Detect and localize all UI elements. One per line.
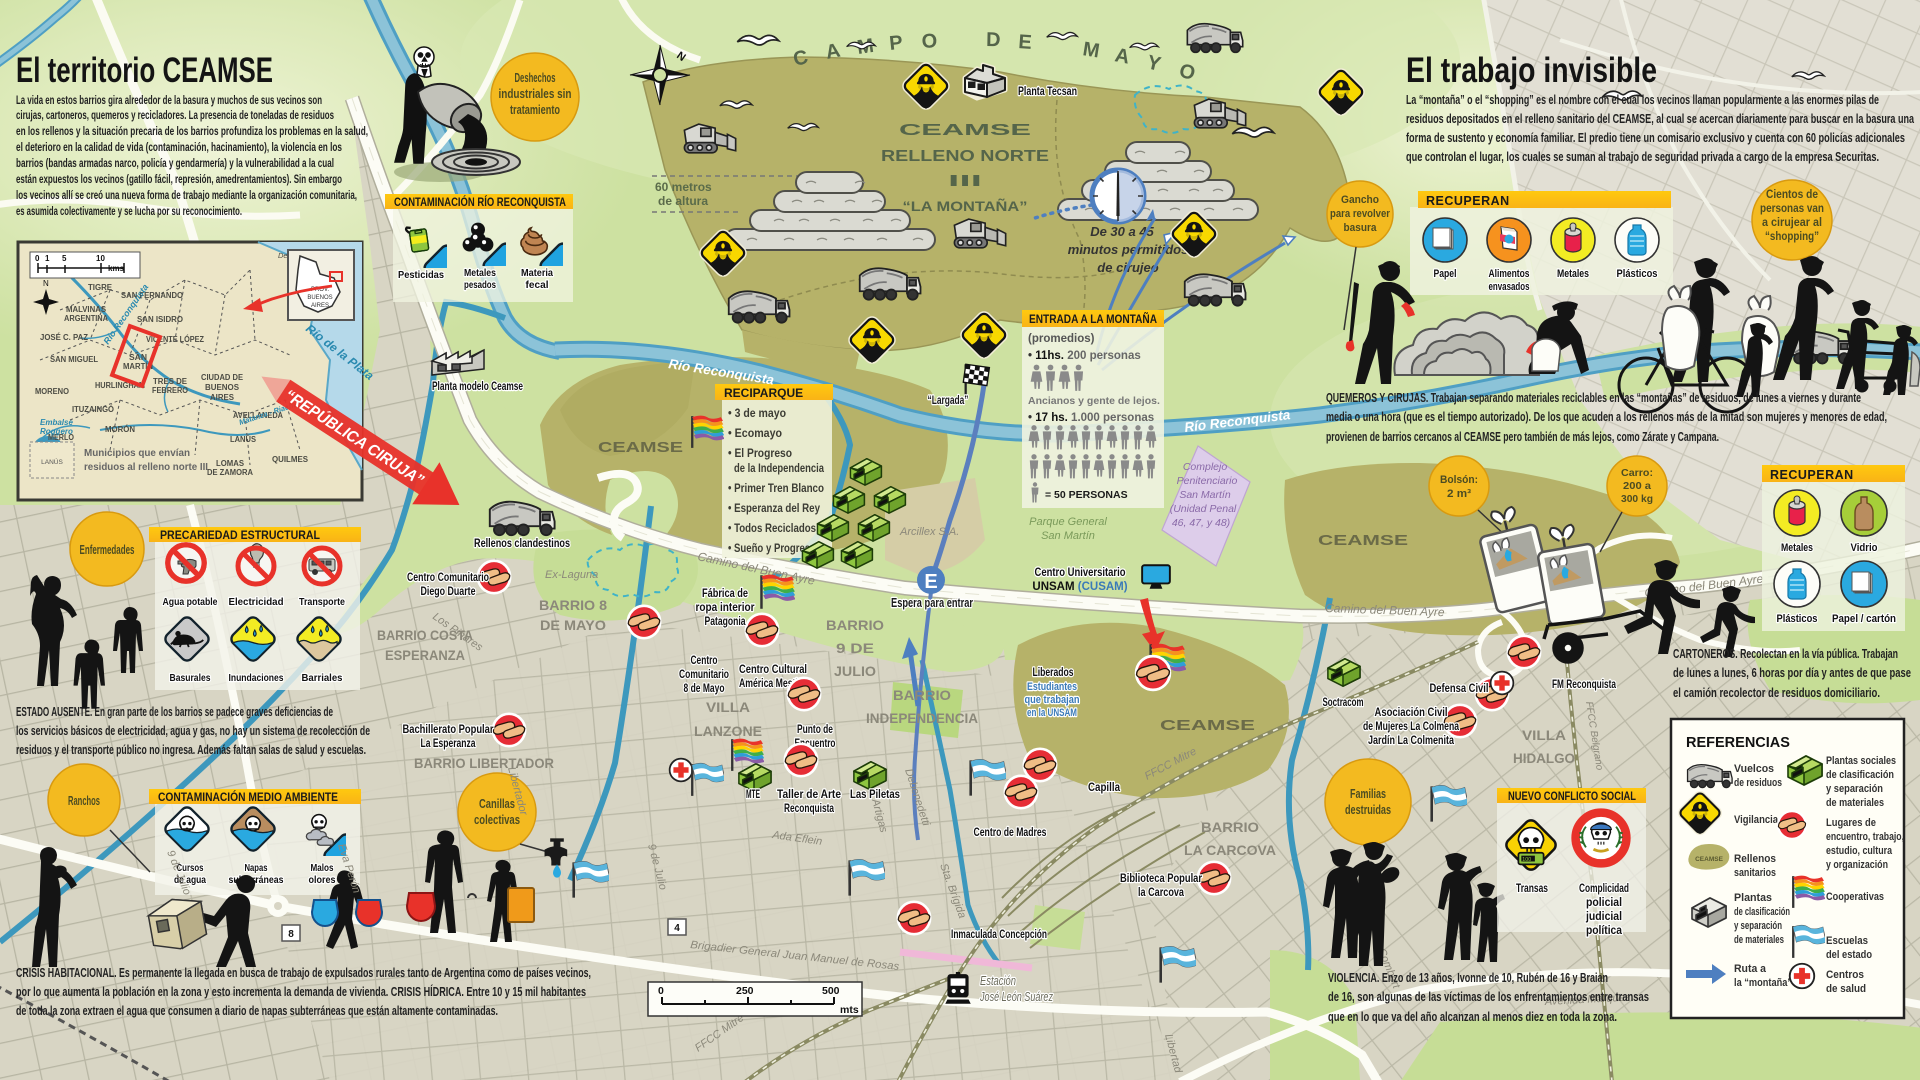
svg-text:Comunitario: Comunitario [679, 669, 729, 681]
svg-text:Centro Cultural: Centro Cultural [739, 664, 807, 676]
svg-text:CEAMSE: CEAMSE [1695, 856, 1723, 863]
svg-text:= 50 PERSONAS: = 50 PERSONAS [1045, 489, 1128, 501]
svg-text:para revolver: para revolver [1330, 208, 1391, 220]
svg-text:residuos al relleno norte III: residuos al relleno norte III [84, 462, 208, 473]
svg-text:“LA MONTAÑA”: “LA MONTAÑA” [903, 197, 1028, 214]
svg-text:0: 0 [35, 254, 40, 263]
svg-text:La “montaña” o el “shopping” e: La “montaña” o el “shopping” es el nombr… [1406, 93, 1879, 107]
svg-text:que trabajan: que trabajan [1025, 694, 1080, 706]
svg-text:Soctracom: Soctracom [1323, 697, 1364, 709]
svg-text:Pesticidas: Pesticidas [398, 269, 444, 281]
svg-text:que controlan el lugar, los cu: que controlan el lugar, los cuales se su… [1406, 150, 1879, 164]
svg-text:BARRIO 8: BARRIO 8 [539, 597, 607, 613]
svg-text:Parque General: Parque General [1029, 516, 1107, 528]
svg-text:minutos permitidos: minutos permitidos [1068, 242, 1189, 257]
svg-text:BARRIO LIBERTADOR: BARRIO LIBERTADOR [414, 755, 554, 771]
svg-text:ESPERANZA: ESPERANZA [385, 647, 465, 663]
svg-text:VIOLENCIA. Enzo de 13 años, Iv: VIOLENCIA. Enzo de 13 años, Ivonne de 10… [1328, 971, 1608, 985]
svg-text:BUENOS: BUENOS [205, 383, 240, 392]
svg-text:política: política [1586, 925, 1623, 937]
svg-text:Embalse: Embalse [40, 418, 73, 427]
svg-text:que en lo que va del año alcan: que en lo que va del año alcanzan al men… [1328, 1010, 1617, 1024]
svg-text:Centros: Centros [1826, 969, 1864, 981]
svg-text:policial: policial [1586, 897, 1622, 909]
svg-text:por lo que aumenta la població: por lo que aumenta la población en la zo… [16, 984, 586, 999]
svg-text:8 de Mayo: 8 de Mayo [684, 683, 725, 695]
svg-text:• Todos Reciclados: • Todos Reciclados [728, 523, 816, 535]
svg-text:cirujas, cartoneros, quemeros: cirujas, cartoneros, quemeros y reciclad… [16, 108, 334, 122]
svg-text:• 11hs. 200 personas: • 11hs. 200 personas [1028, 350, 1141, 362]
svg-text:Espera para entrar: Espera para entrar [891, 596, 973, 610]
svg-text:la “montaña”: la “montaña” [1734, 977, 1792, 989]
svg-text:MALVINAS: MALVINAS [66, 305, 107, 314]
svg-text:ESTADO AUSENTE. En gran parte: ESTADO AUSENTE. En gran parte de los bar… [16, 705, 333, 719]
svg-text:300 kg: 300 kg [1621, 493, 1653, 505]
svg-text:MTE: MTE [746, 789, 760, 801]
svg-text:RELLENO NORTE: RELLENO NORTE [881, 148, 1049, 165]
svg-text:Barriales: Barriales [302, 672, 343, 684]
svg-text:Arcillex S.A.: Arcillex S.A. [899, 526, 959, 538]
svg-text:Planta modelo Ceamse: Planta modelo Ceamse [432, 379, 523, 393]
svg-text:Ancianos y gente de lejos.: Ancianos y gente de lejos. [1028, 395, 1160, 407]
svg-text:mts: mts [840, 1004, 859, 1016]
svg-text:CONTAMINACIÓN MEDIO AMBIENTE: CONTAMINACIÓN MEDIO AMBIENTE [158, 791, 338, 804]
svg-text:Asociación Civil: Asociación Civil [1375, 707, 1448, 719]
svg-text:III: III [948, 173, 982, 190]
svg-text:de residuos: de residuos [1734, 777, 1782, 789]
svg-text:• Primer Tren Blanco: • Primer Tren Blanco [728, 483, 824, 495]
svg-text:REFERENCIAS: REFERENCIAS [1686, 735, 1790, 751]
svg-text:HIDALGO: HIDALGO [1513, 750, 1575, 766]
svg-text:Papel / cartón: Papel / cartón [1832, 613, 1896, 625]
svg-text:LA CARCOVA: LA CARCOVA [1184, 842, 1276, 858]
svg-text:la Carcova: la Carcova [1138, 887, 1184, 899]
svg-text:(promedios): (promedios) [1028, 333, 1095, 345]
svg-text:de 16, son algunas de las víct: de 16, son algunas de las víctimas de lo… [1328, 990, 1649, 1004]
svg-text:N: N [43, 279, 49, 288]
svg-text:Cientos de: Cientos de [1766, 189, 1818, 201]
svg-text:sanitarios: sanitarios [1734, 867, 1776, 879]
svg-text:provienen de barrios cercanos: provienen de barrios cercanos al CEAMSE … [1326, 430, 1719, 444]
svg-text:Fábrica de: Fábrica de [702, 588, 748, 600]
svg-text:Cooperativas: Cooperativas [1826, 891, 1884, 903]
svg-text:SAN ISIDRO: SAN ISIDRO [137, 315, 183, 324]
svg-text:El trabajo invisible: El trabajo invisible [1406, 51, 1657, 90]
svg-text:Electricidad: Electricidad [229, 596, 284, 608]
svg-text:Municipios que envían: Municipios que envían [84, 448, 190, 459]
svg-text:residuos y el transporte públi: residuos y el transporte público no ingr… [16, 743, 366, 757]
svg-text:AIRES: AIRES [311, 303, 329, 309]
svg-text:Centro Comunitario: Centro Comunitario [407, 572, 489, 584]
svg-text:FM Reconquista: FM Reconquista [1552, 679, 1616, 691]
svg-text:forma de sustento y economía f: forma de sustento y economía familiar. E… [1406, 131, 1905, 145]
svg-text:Papel: Papel [1434, 268, 1457, 280]
svg-text:Estudiantes: Estudiantes [1027, 681, 1077, 693]
svg-text:INDEPENDENCIA: INDEPENDENCIA [866, 710, 978, 726]
svg-text:Plásticos: Plásticos [1777, 613, 1818, 625]
svg-text:Escuelas: Escuelas [1826, 935, 1868, 947]
svg-text:Estación: Estación [980, 974, 1016, 988]
svg-text:de altura: de altura [658, 194, 708, 208]
svg-text:D: D [986, 29, 1001, 51]
svg-text:Punto de: Punto de [797, 724, 833, 736]
svg-text:los servicios básicos de elect: los servicios básicos de electricidad, a… [16, 724, 370, 738]
svg-text:Enfermedades: Enfermedades [80, 543, 135, 557]
svg-text:fecal: fecal [526, 279, 549, 291]
svg-text:Transas: Transas [1516, 883, 1548, 895]
svg-text:tratamiento: tratamiento [510, 103, 560, 117]
svg-text:VILLA: VILLA [706, 699, 750, 715]
svg-text:Gancho: Gancho [1341, 194, 1379, 206]
svg-text:SAN: SAN [129, 353, 147, 362]
svg-text:Transporte: Transporte [299, 596, 345, 608]
svg-text:PRECARIEDAD ESTRUCTURAL: PRECARIEDAD ESTRUCTURAL [160, 530, 320, 542]
svg-text:media o una hora (que es el ti: media o una hora (que es el tiempo autor… [1326, 410, 1887, 424]
svg-text:DE MAYO: DE MAYO [540, 617, 606, 633]
svg-text:el camión recolector de residu: el camión recolector de residuos domicil… [1673, 686, 1880, 700]
svg-text:el deterioro en la calidad de: el deterioro en la calidad de vida (cont… [16, 140, 342, 154]
svg-text:de materiales: de materiales [1826, 797, 1884, 809]
svg-text:Metales: Metales [1557, 268, 1589, 280]
svg-text:del estado: del estado [1826, 949, 1872, 961]
svg-text:Agua potable: Agua potable [163, 596, 218, 608]
svg-text:Diego Duarte: Diego Duarte [421, 586, 476, 598]
svg-text:LOMAS: LOMAS [216, 459, 245, 468]
svg-text:VILLA: VILLA [1522, 727, 1566, 743]
svg-text:60 metros: 60 metros [655, 180, 712, 194]
svg-text:UNSAM (CUSAM): UNSAM (CUSAM) [1032, 581, 1127, 593]
svg-text:Defensa Civil: Defensa Civil [1430, 683, 1489, 695]
svg-text:DE ZAMORA: DE ZAMORA [207, 468, 253, 477]
svg-text:La vida en estos barrios gira: La vida en estos barrios gira alrededor … [16, 93, 322, 107]
svg-text:ITUZAINGÓ: ITUZAINGÓ [72, 405, 114, 414]
svg-text:colectivas: colectivas [474, 813, 520, 827]
svg-text:Vuelcos: Vuelcos [1734, 763, 1774, 775]
svg-text:y separación: y separación [1826, 783, 1883, 795]
svg-text:residuos depositados en el rel: residuos depositados en el relleno sanit… [1406, 112, 1915, 126]
svg-text:MORENO: MORENO [35, 387, 69, 396]
svg-text:destruidas: destruidas [1345, 803, 1391, 817]
svg-text:BARRIO: BARRIO [893, 687, 951, 703]
svg-text:CIUDAD DE: CIUDAD DE [201, 373, 244, 382]
svg-text:La Esperanza: La Esperanza [421, 738, 476, 750]
svg-text:ropa interior: ropa interior [696, 602, 755, 614]
svg-text:QUILMES: QUILMES [272, 455, 309, 464]
svg-text:200 a: 200 a [1623, 480, 1651, 492]
svg-text:kms: kms [108, 264, 125, 273]
svg-text:Napas: Napas [245, 862, 268, 874]
svg-text:Carro:: Carro: [1621, 467, 1653, 479]
svg-text:Malos: Malos [311, 862, 334, 874]
svg-text:46, 47, y 48): 46, 47, y 48) [1172, 517, 1230, 529]
svg-text:CONTAMINACIÓN RÍO RECONQUISTA: CONTAMINACIÓN RÍO RECONQUISTA [394, 196, 566, 209]
svg-text:NUEVO CONFLICTO SOCIAL: NUEVO CONFLICTO SOCIAL [1508, 791, 1636, 803]
svg-text:Patagonia: Patagonia [705, 616, 746, 628]
svg-text:Complejo: Complejo [1183, 461, 1228, 473]
svg-text:9 DE: 9 DE [836, 640, 874, 656]
svg-text:Bolsón:: Bolsón: [1440, 474, 1478, 486]
svg-text:Centro: Centro [691, 655, 718, 667]
svg-text:CARTONEROS. Recolectan en la v: CARTONEROS. Recolectan en la vía pública… [1673, 647, 1898, 661]
svg-text:Planta Tecsan: Planta Tecsan [1018, 84, 1077, 98]
svg-text:P: P [888, 32, 904, 55]
svg-text:Penitenciario: Penitenciario [1177, 475, 1238, 487]
svg-text:Familias: Familias [1350, 787, 1386, 801]
svg-text:industriales sin: industriales sin [499, 87, 572, 101]
svg-text:QUEMEROS Y CIRUJAS. Trabajan s: QUEMEROS Y CIRUJAS. Trabajan separando m… [1326, 391, 1861, 405]
svg-text:en la UNSAM: en la UNSAM [1027, 707, 1077, 719]
svg-text:LANÚS: LANÚS [41, 457, 63, 466]
svg-text:de salud: de salud [1826, 983, 1866, 995]
svg-text:Deshechos: Deshechos [515, 71, 556, 85]
svg-text:y separación: y separación [1734, 920, 1782, 932]
svg-text:O: O [921, 30, 938, 53]
svg-text:Metales: Metales [1781, 542, 1813, 554]
svg-text:LANZONE: LANZONE [694, 723, 762, 739]
svg-text:CEAMSE: CEAMSE [1318, 532, 1408, 549]
svg-text:Plantas: Plantas [1734, 892, 1772, 904]
svg-text:• 3 de mayo: • 3 de mayo [728, 408, 786, 420]
svg-text:SAN MIGUEL: SAN MIGUEL [50, 355, 98, 364]
svg-text:están expuestos los vecinos (g: están expuestos los vecinos (gatillo fác… [16, 172, 342, 186]
svg-text:CEAMSE: CEAMSE [598, 439, 683, 456]
svg-text:5: 5 [62, 254, 67, 263]
svg-text:MORÓN: MORÓN [105, 425, 135, 434]
svg-text:de clasificación: de clasificación [1734, 906, 1790, 918]
svg-text:Biblioteca Popular: Biblioteca Popular [1120, 873, 1202, 885]
svg-text:BUENOS: BUENOS [307, 295, 332, 301]
svg-text:• Esperanza del Rey: • Esperanza del Rey [728, 503, 821, 515]
svg-text:• 17 hs. 1.000 personas: • 17 hs. 1.000 personas [1028, 412, 1154, 424]
svg-text:RECUPERAN: RECUPERAN [1426, 194, 1510, 208]
svg-text:Reconquista: Reconquista [784, 803, 834, 815]
svg-text:de materiales: de materiales [1734, 934, 1784, 946]
svg-text:Roggero: Roggero [40, 427, 73, 436]
svg-text:Taller de Arte: Taller de Arte [777, 789, 841, 801]
svg-text:Capilla: Capilla [1088, 782, 1121, 794]
svg-text:personas van: personas van [1760, 203, 1824, 215]
svg-text:500: 500 [822, 985, 840, 997]
svg-text:“Largada”: “Largada” [928, 393, 969, 407]
svg-text:BARRIO: BARRIO [1201, 819, 1259, 835]
svg-text:El territorio CEAMSE: El territorio CEAMSE [16, 51, 273, 90]
svg-text:Basurales: Basurales [170, 672, 211, 684]
svg-text:0: 0 [658, 985, 664, 997]
svg-text:de lunes a lunes, 6 horas por: de lunes a lunes, 6 horas por día y ante… [1673, 666, 1911, 680]
svg-text:Materia: Materia [521, 267, 553, 279]
svg-text:estudio, cultura: estudio, cultura [1826, 845, 1893, 857]
svg-text:AIRES: AIRES [210, 393, 235, 402]
svg-text:envasados: envasados [1489, 281, 1530, 293]
svg-text:es asumida colectivamente y se: es asumida colectivamente y se lucha por… [16, 204, 242, 218]
svg-text:RECIPARQUE: RECIPARQUE [724, 386, 803, 400]
svg-text:Plásticos: Plásticos [1617, 268, 1658, 280]
svg-text:JULIO: JULIO [834, 663, 876, 679]
svg-text:JOSÉ C. PAZ: JOSÉ C. PAZ [40, 333, 88, 342]
svg-text:Centro Universitario: Centro Universitario [1035, 567, 1126, 579]
svg-text:• Ecomayo: • Ecomayo [728, 428, 782, 440]
svg-text:ENTRADA A LA MONTAÑA: ENTRADA A LA MONTAÑA [1029, 313, 1157, 326]
svg-text:Liberados: Liberados [1033, 667, 1074, 679]
svg-text:LANÚS: LANÚS [230, 435, 257, 444]
svg-text:250: 250 [736, 985, 754, 997]
svg-text:“shopping”: “shopping” [1765, 231, 1819, 243]
svg-text:• El Progreso: • El Progreso [728, 448, 792, 460]
svg-text:Rellenos: Rellenos [1734, 853, 1776, 865]
svg-text:Vidrio: Vidrio [1851, 542, 1878, 554]
svg-text:encuentro, trabajo,: encuentro, trabajo, [1826, 831, 1904, 843]
svg-text:Alimentos: Alimentos [1489, 268, 1530, 280]
svg-text:E: E [1018, 31, 1033, 54]
svg-text:ARGENTINA: ARGENTINA [64, 314, 108, 323]
svg-text:olores: olores [309, 874, 336, 886]
svg-text:Inundaciones: Inundaciones [229, 672, 284, 684]
svg-text:Ranchos: Ranchos [68, 794, 100, 808]
svg-text:Plantas sociales: Plantas sociales [1826, 755, 1896, 767]
svg-text:Ex-Laguna: Ex-Laguna [545, 569, 598, 581]
svg-text:judicial: judicial [1585, 911, 1622, 923]
svg-text:Vigilancia: Vigilancia [1734, 814, 1779, 826]
svg-text:Jardín La Colmenita: Jardín La Colmenita [1368, 735, 1454, 747]
svg-text:1: 1 [45, 254, 50, 263]
svg-text:RECUPERAN: RECUPERAN [1770, 468, 1854, 482]
svg-text:(Unidad Penal: (Unidad Penal [1170, 503, 1237, 515]
svg-text:Centro de Madres: Centro de Madres [974, 827, 1047, 839]
svg-text:los vecinos allí se creó una n: los vecinos allí se creó una nueva forma… [16, 188, 357, 202]
svg-text:Canillas: Canillas [479, 797, 515, 811]
svg-text:en los rellenos y la situación: en los rellenos y la situación precaria … [16, 124, 368, 138]
svg-text:José León Suárez: José León Suárez [979, 990, 1053, 1004]
svg-text:Ruta a: Ruta a [1734, 963, 1767, 975]
svg-text:y organización: y organización [1826, 859, 1888, 871]
svg-text:de clasificación: de clasificación [1826, 769, 1894, 781]
svg-text:de la Independencia: de la Independencia [734, 463, 824, 475]
svg-text:Lugares de: Lugares de [1826, 817, 1876, 829]
svg-text:Rellenos clandestinos: Rellenos clandestinos [474, 536, 570, 550]
svg-text:4: 4 [674, 923, 680, 934]
svg-text:10: 10 [96, 254, 105, 263]
svg-text:Inmaculada Concepción: Inmaculada Concepción [951, 929, 1047, 941]
svg-text:FEBRERO: FEBRERO [152, 386, 188, 395]
svg-text:CEAMSE: CEAMSE [1160, 717, 1255, 734]
svg-text:E: E [924, 571, 937, 593]
svg-text:basura: basura [1344, 222, 1378, 234]
svg-text:San Martín: San Martín [1041, 530, 1095, 542]
svg-text:San Martín: San Martín [1179, 489, 1231, 501]
svg-text:Metales: Metales [464, 267, 496, 279]
svg-text:TRES DE: TRES DE [153, 377, 188, 386]
svg-text:Bachillerato Popular: Bachillerato Popular [403, 724, 494, 736]
svg-text:TIGRE: TIGRE [88, 283, 113, 292]
svg-text:CEAMSE: CEAMSE [899, 122, 1032, 139]
svg-text:8: 8 [288, 929, 294, 940]
svg-text:barrios (bandas armadas narco,: barrios (bandas armadas narco, policía y… [16, 156, 334, 170]
svg-text:2 m³: 2 m³ [1447, 488, 1471, 500]
svg-text:de Mujeres La Colmena: de Mujeres La Colmena [1363, 721, 1459, 733]
svg-text:Complicidad: Complicidad [1579, 883, 1629, 895]
svg-text:de toda la zona extraen el agu: de toda la zona extraen el agua que cons… [16, 1004, 498, 1018]
svg-text:M: M [1081, 38, 1101, 62]
svg-text:a cirujear al: a cirujear al [1762, 217, 1822, 229]
svg-text:BARRIO: BARRIO [826, 617, 884, 633]
svg-text:CRISIS HABITACIONAL. Es perman: CRISIS HABITACIONAL. Es permanente la ll… [16, 966, 591, 980]
svg-text:pesados: pesados [464, 279, 496, 291]
